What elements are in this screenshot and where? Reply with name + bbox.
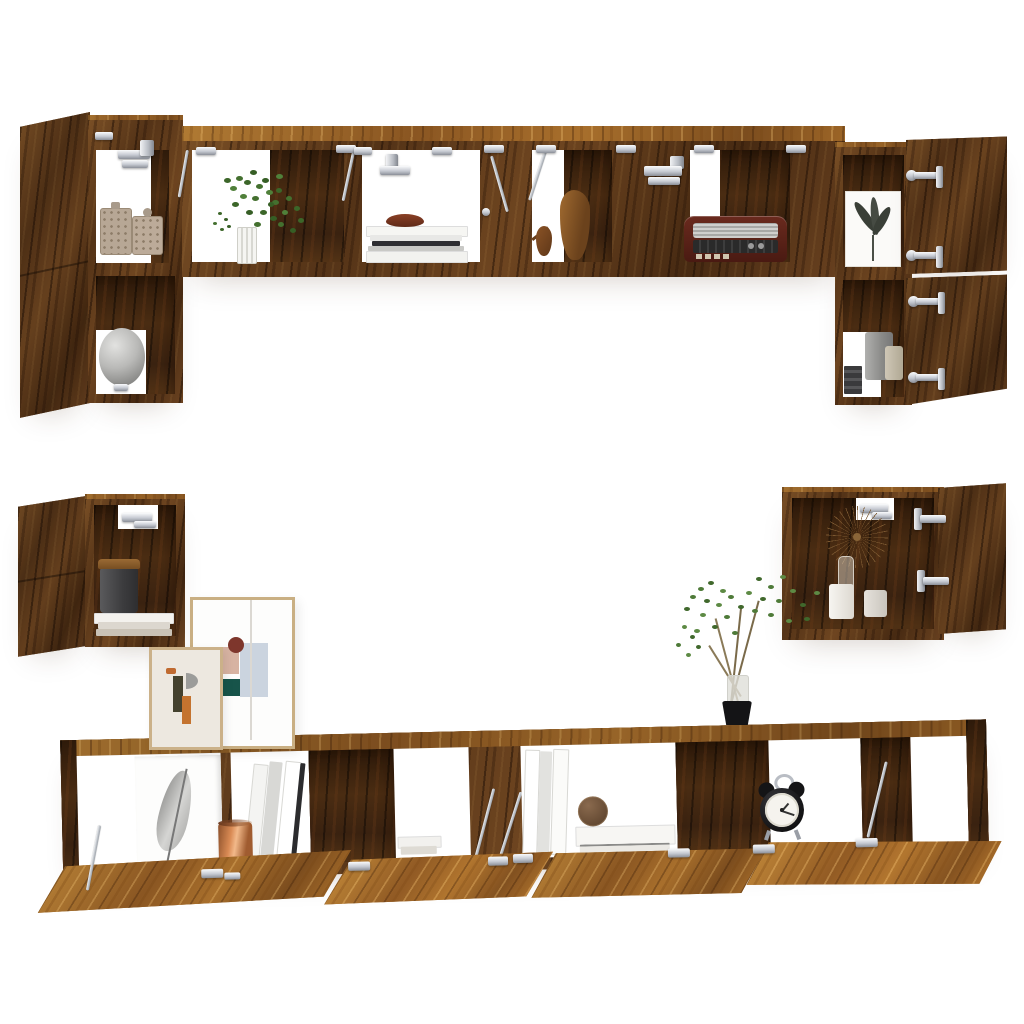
cup-hinge	[908, 368, 954, 390]
hinge-plate	[938, 292, 945, 314]
stand-back-panel	[675, 740, 771, 854]
compartment-figurines	[532, 150, 612, 262]
stand-back-panel	[308, 749, 396, 863]
left-tall-cabinet-door	[20, 112, 90, 418]
flap-hinge-tab	[484, 145, 504, 153]
stand-compartment-books-balls	[520, 742, 678, 857]
art-grey-halfmoon	[186, 673, 198, 689]
sphere-vase	[99, 328, 145, 386]
starburst-center	[853, 533, 861, 541]
radio-speaker-panel	[693, 223, 778, 238]
long-wall-cabinet	[182, 126, 845, 277]
flap-hinge	[224, 872, 240, 879]
flap-hinge	[513, 854, 533, 863]
cup-hinge	[906, 246, 952, 268]
compartment-plant	[192, 150, 344, 262]
flap-hinge-tab	[336, 145, 356, 153]
radio-dial-strip	[693, 240, 778, 253]
hinge-plate	[936, 246, 943, 268]
clock-leg	[794, 829, 801, 840]
clock-leg	[764, 830, 771, 841]
ribbed-vase	[237, 227, 257, 264]
starburst-decoration	[826, 506, 888, 568]
leaf-art-print	[845, 191, 901, 267]
open-gap	[910, 736, 969, 849]
brown-bowl	[386, 214, 424, 227]
flap-hinge	[668, 848, 690, 857]
feather-art-board	[135, 755, 223, 867]
flap-hinge-tab	[354, 147, 372, 155]
open-back-gap	[690, 150, 720, 220]
clock-center-dot	[780, 808, 784, 812]
beige-cup	[885, 346, 903, 380]
flap-hinge-tab	[616, 145, 636, 153]
white-jar	[829, 584, 854, 619]
hinge-arm	[923, 577, 949, 585]
stand-right-post	[966, 719, 989, 859]
flap-hinge-tab	[786, 145, 806, 153]
flap-hinge-tab	[196, 147, 216, 155]
right-cabinet-bottom-opening	[843, 280, 904, 397]
jar-ball-knob	[143, 208, 152, 217]
stand-compartment-feather	[77, 753, 224, 868]
book	[98, 622, 170, 629]
flap-hinge-tab	[432, 147, 452, 155]
stand-compartment-small-books	[393, 747, 471, 861]
cube-interior	[94, 505, 176, 636]
top-wall-unit	[0, 0, 1024, 420]
door-hinge-tab	[95, 132, 113, 140]
cabinet-top-edge	[835, 142, 912, 147]
sphere-foot	[114, 384, 128, 391]
left-cube-door	[18, 496, 86, 657]
dark-book-stack	[844, 366, 862, 394]
flap-hinge	[753, 844, 775, 853]
right-cabinet-top-opening	[843, 155, 904, 267]
carved-jar-square	[100, 208, 132, 255]
door-hinge-bar2	[122, 160, 148, 168]
flap-hinge	[488, 856, 508, 865]
scattered-leaves	[218, 212, 222, 215]
long-cabinet-top-face	[182, 126, 845, 141]
cross-hinge	[917, 568, 953, 594]
flap-hinge	[348, 861, 370, 870]
right-tall-cabinet	[835, 142, 912, 405]
flap-hinge-tab	[694, 145, 714, 153]
gourd-vase	[560, 190, 590, 260]
gas-stay	[499, 792, 522, 856]
flap-hinge	[856, 838, 878, 847]
gas-stay	[474, 788, 495, 858]
flap-door-open	[747, 841, 1002, 885]
book	[401, 846, 437, 855]
cup-hinge	[908, 292, 954, 314]
left-cabinet-bottom-opening	[96, 276, 175, 394]
interior-back-panel	[270, 150, 344, 262]
art-orange-bar	[182, 696, 191, 724]
cabinet-top-edge	[88, 115, 183, 120]
art-blue-rect	[240, 643, 268, 697]
product-photo-scene	[0, 0, 1024, 1024]
hanging-plant-foliage	[236, 176, 243, 181]
candle	[864, 590, 887, 617]
black-pot	[722, 701, 752, 725]
door-seam	[20, 260, 90, 277]
flap-door-open	[531, 848, 765, 897]
left-wall-cube-cabinet	[85, 494, 185, 647]
frame-seam-line	[250, 600, 252, 740]
canister-lid	[98, 559, 140, 569]
hanging-plant-foliage	[276, 188, 282, 193]
jar-knob	[111, 202, 120, 209]
hinge-plate	[936, 166, 943, 188]
l-bracket-arm	[380, 166, 410, 175]
plant-foliage	[682, 625, 687, 629]
book	[96, 629, 172, 636]
cup-hinge	[906, 166, 952, 188]
flap-hinge	[201, 869, 223, 878]
stay-ball-end	[482, 208, 490, 216]
flap-hinge-tab	[536, 145, 556, 153]
art-rust-circle	[228, 637, 244, 653]
alarm-clock	[757, 774, 806, 841]
door-hinge-plate	[140, 140, 154, 156]
branch-plant	[660, 565, 830, 730]
plant-foliage	[698, 587, 704, 591]
gas-stay	[490, 156, 509, 213]
canister-with-wood-lid	[100, 567, 138, 613]
l-bracket-arm	[648, 177, 680, 185]
vintage-radio	[684, 216, 787, 262]
left-tall-cabinet	[88, 115, 183, 403]
copper-cup-rim	[218, 819, 252, 827]
door-hinge-arm	[134, 521, 156, 528]
plant-foliage	[756, 577, 762, 581]
cabinet-top-edge	[85, 494, 185, 499]
wicker-ball	[610, 793, 642, 825]
book	[366, 251, 468, 263]
cabinet-top-edge	[782, 487, 944, 492]
leaning-book	[550, 749, 569, 855]
door-seam	[18, 570, 86, 583]
compartment-radio	[690, 150, 790, 262]
wicker-ball	[578, 796, 609, 827]
framed-print-small	[149, 647, 223, 750]
cross-hinge	[914, 506, 950, 532]
hinge-arm	[920, 515, 946, 523]
l-bracket-arm	[644, 166, 682, 176]
leaf-stem	[872, 235, 874, 261]
carved-jar-round-lid	[132, 216, 163, 255]
feather	[151, 768, 198, 855]
art-orange-dash	[166, 668, 176, 674]
radio-knob	[748, 243, 754, 249]
radio-buttons	[696, 254, 730, 259]
hinge-plate	[938, 368, 945, 390]
